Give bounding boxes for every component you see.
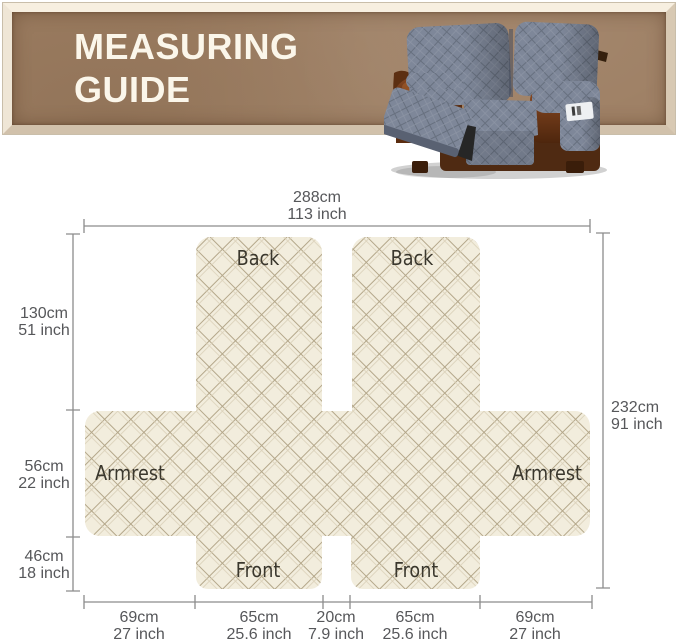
dimension-line-left bbox=[66, 234, 80, 591]
measurement-bottom-front-right: 65cm 25.6 inch bbox=[383, 609, 448, 640]
panel-label-armrest-right: Armrest bbox=[512, 461, 582, 485]
panel-label-back-left: Back bbox=[237, 246, 280, 270]
measurement-top: 288cm 113 inch bbox=[287, 189, 346, 223]
sofa-back-cushion-left bbox=[406, 22, 512, 107]
sofa-armrest-cover-left bbox=[406, 73, 464, 89]
measurement-bottom-center-gap: 20cm 7.9 inch bbox=[308, 609, 364, 640]
panel-label-back-right: Back bbox=[391, 246, 434, 270]
measuring-guide-page: MEASURING GUIDE bbox=[0, 0, 679, 640]
panel-label-front-left: Front bbox=[236, 558, 281, 582]
panel-label-armrest-left: Armrest bbox=[95, 461, 165, 485]
measurement-armrest-height: 56cm 22 inch bbox=[18, 458, 70, 492]
measurement-front-height: 46cm 18 inch bbox=[18, 548, 70, 582]
measurement-top-cm: 288cm bbox=[287, 189, 346, 206]
panel-label-front-right: Front bbox=[394, 558, 439, 582]
measurement-bottom-armrest-right: 69cm 27 inch bbox=[509, 609, 561, 640]
sofa-illustration bbox=[384, 21, 608, 179]
cover-cross-shape bbox=[85, 237, 590, 589]
measurement-right: 232cm 91 inch bbox=[611, 399, 663, 433]
dimension-line-right bbox=[596, 233, 610, 588]
measurement-top-inch: 113 inch bbox=[287, 206, 346, 223]
measurement-bottom-armrest-left: 69cm 27 inch bbox=[113, 609, 165, 640]
measurement-bottom-front-left: 65cm 25.6 inch bbox=[227, 609, 292, 640]
dimension-line-bottom bbox=[84, 595, 592, 609]
sofa-side-pocket bbox=[565, 102, 594, 122]
product-photo-sofa bbox=[384, 3, 666, 185]
measurement-back-height: 130cm 51 inch bbox=[18, 305, 70, 339]
